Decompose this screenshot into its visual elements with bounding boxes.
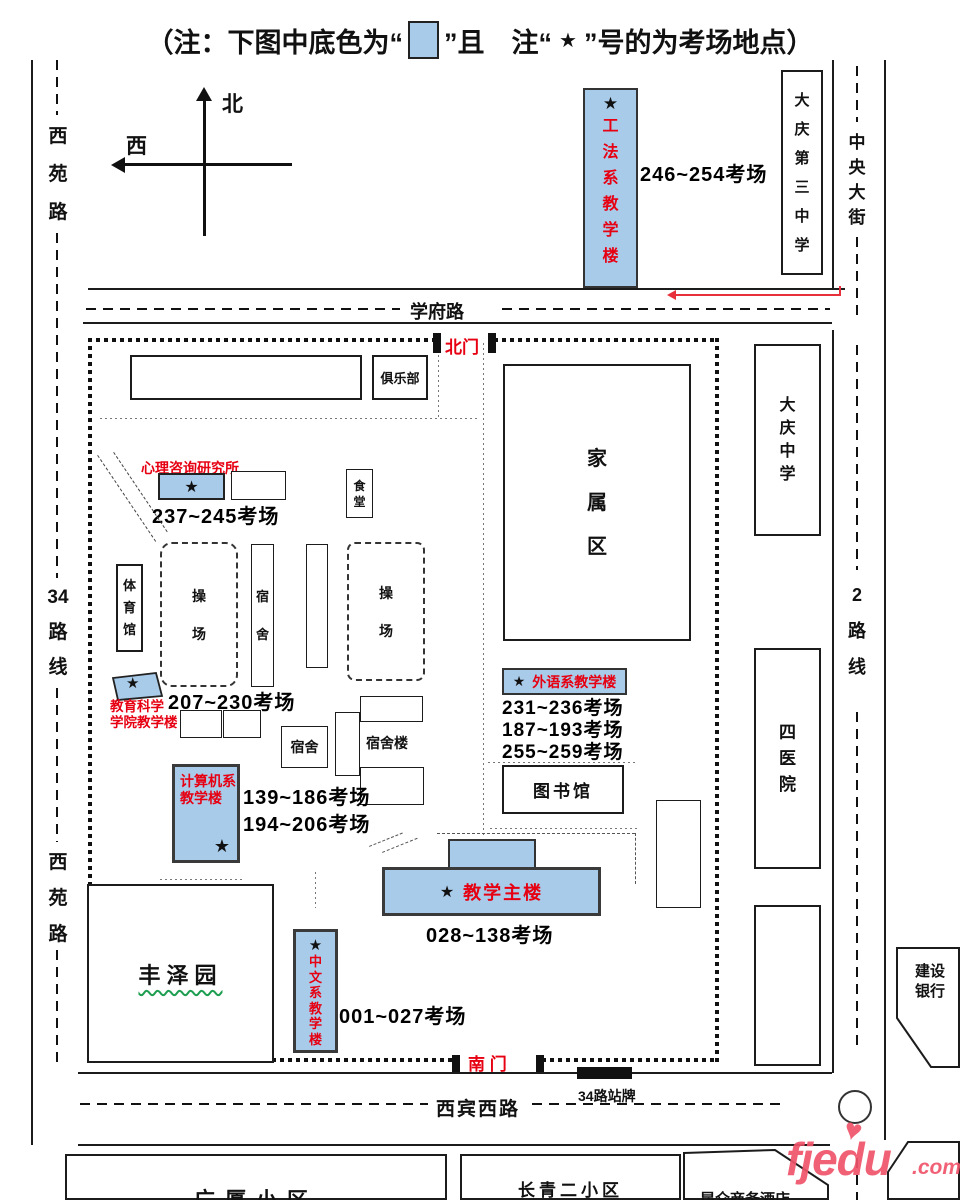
building-club: 俱乐部 <box>372 355 428 400</box>
inner-dotted-line <box>483 343 484 835</box>
building-unnamed-small <box>223 710 261 738</box>
dorm-vertical-label: 宿 舍 <box>256 578 269 654</box>
star-icon: ★ <box>440 882 454 902</box>
star-icon: ★ <box>126 674 139 692</box>
building-gym-label: 体 育 馆 <box>123 575 136 641</box>
campus-boundary-right <box>715 338 719 1062</box>
dorm-complex-label: 宿舍楼 <box>366 733 408 753</box>
building-no4-hospital-label: 四 医 院 <box>779 720 796 798</box>
building-daqing-middle-school: 大 庆 中 学 <box>754 344 821 536</box>
map-note: （注：下图中底色为“ ”且 注“ ★ ”号的为考场地点） <box>0 16 960 64</box>
playground-east: 操 场 <box>347 542 425 681</box>
building-unnamed-south <box>754 905 821 1066</box>
dashed-outline <box>437 833 635 834</box>
building-zhulou: ★ 教学主楼 <box>382 867 601 916</box>
building-waiyu-label: 外语系教学楼 <box>532 672 616 692</box>
building-waiyu: ★ 外语系教学楼 <box>502 668 627 695</box>
road-label-2-line: 2 路 线 <box>838 577 876 685</box>
building-fengzeyuan: 丰泽园 <box>87 884 274 1063</box>
compass-north-label: 北 <box>222 88 243 118</box>
area-family-label: 家 属 区 <box>587 437 607 569</box>
rooms-001-027: 001~027考场 <box>339 1000 466 1029</box>
north-gate-post <box>488 333 496 353</box>
watermark: ♥ fjedu .com <box>782 1122 960 1198</box>
dorm-complex-box <box>335 712 360 776</box>
rooms-028-138: 028~138考场 <box>426 919 553 948</box>
red-route-arrow-icon <box>667 290 676 300</box>
compass-north-arrow-icon <box>196 87 212 101</box>
watermark-brand: fjedu <box>786 1132 891 1186</box>
left-road-centerline <box>56 233 58 578</box>
inner-dotted-line <box>490 828 637 829</box>
campus-boundary-top <box>494 338 718 342</box>
building-jisuanji-label: 计算机系 教学楼 <box>175 767 237 807</box>
xibin-road-centerline <box>80 1103 428 1105</box>
rooms-237-245: 237~245考场 <box>152 500 279 529</box>
building-kunlun-label: 昆仑商务酒店 <box>700 1188 790 1200</box>
star-icon: ★ <box>214 836 230 857</box>
building-daqing-no3-middle-school: 大 庆 第 三 中 学 <box>781 70 823 275</box>
south-block-edge <box>78 1144 830 1146</box>
star-icon: ★ <box>184 477 198 497</box>
road-label-xiyuan-top: 西 苑 路 <box>38 118 78 232</box>
inner-dotted-line <box>315 872 316 908</box>
building-library-label: 图书馆 <box>533 777 593 802</box>
area-family-residential: 家 属 区 <box>503 364 691 641</box>
rooms-246-254: 246~254考场 <box>640 158 767 187</box>
road-label-xuefu: 学府路 <box>410 298 464 324</box>
red-route-tick <box>839 286 841 296</box>
xibin-road-centerline <box>532 1103 782 1105</box>
right-road-edge-inner <box>832 60 834 289</box>
north-gate-label: 北门 <box>445 333 479 358</box>
xibin-road-north-edge <box>78 1072 832 1074</box>
building-guangsha-label: 广厦小区 <box>67 1184 445 1200</box>
building-gongfa-teaching: ★ 工 法 系 教 学 楼 <box>583 88 638 288</box>
star-icon: ★ <box>603 94 618 114</box>
building-guangsha: 广厦小区 <box>65 1154 447 1200</box>
star-icon: ★ <box>309 936 322 954</box>
note-mid: ”且 注“ <box>444 21 552 60</box>
building-unnamed-long <box>130 355 362 400</box>
note-prefix: （注：下图中底色为“ <box>147 21 404 60</box>
playground-west-label: 操 场 <box>192 577 206 653</box>
building-unnamed-tall <box>656 800 701 908</box>
compass-horizontal-line <box>122 163 292 166</box>
building-zhulou-wing <box>448 839 536 869</box>
compass-vertical-line <box>203 98 206 236</box>
north-gate-post <box>433 333 441 353</box>
watermark-tld: .com <box>912 1156 960 1180</box>
right-road-edge-outer <box>884 60 886 1140</box>
left-road-centerline <box>56 688 58 842</box>
dashed-outline <box>635 833 636 884</box>
bus-stop-34-label: 34路站牌 <box>578 1086 636 1106</box>
compass-west-label: 西 <box>126 130 147 160</box>
inner-dotted-line <box>488 762 636 763</box>
building-xinli: ★ <box>158 473 225 500</box>
building-changqing-label: 长青二小区 <box>462 1176 679 1200</box>
blue-legend-swatch <box>408 21 439 59</box>
xuefu-road-centerline <box>86 308 400 310</box>
bus-stop-34-bar <box>577 1067 632 1079</box>
building-bank-label: 建设 银行 <box>908 962 952 1002</box>
right-road-edge-inner <box>832 330 834 1073</box>
rooms-jisuanji: 139~186考场 194~206考场 <box>243 785 370 839</box>
star-legend-icon: ★ <box>559 28 577 53</box>
left-road-edge <box>31 60 33 1145</box>
building-zhongwen-label: 中 文 系 教 学 楼 <box>309 954 322 1047</box>
building-daqing-middle-label: 大 庆 中 学 <box>779 394 795 486</box>
red-route-line <box>676 294 841 296</box>
building-canteen: 食 堂 <box>346 469 373 518</box>
left-road-centerline <box>56 950 58 1062</box>
building-gongfa-label: 工 法 系 教 学 楼 <box>602 114 618 270</box>
building-fengzeyuan-label: 丰泽园 <box>138 958 222 990</box>
building-unnamed-small <box>231 471 286 500</box>
building-zhulou-label: 教学主楼 <box>463 879 543 905</box>
building-unnamed-small <box>180 710 222 738</box>
right-road-centerline <box>856 345 858 570</box>
campus-boundary-bottom <box>542 1058 718 1062</box>
road-label-34-line: 34 路 线 <box>38 580 78 685</box>
note-suffix: ”号的为考场地点） <box>584 21 814 60</box>
inner-dotted-line <box>100 418 477 419</box>
building-library: 图书馆 <box>502 765 624 814</box>
playground-west: 操 场 <box>160 542 238 687</box>
building-gym: 体 育 馆 <box>116 564 143 652</box>
dorm-south: 宿舍 <box>281 726 328 768</box>
dotted-diagonal <box>382 838 418 853</box>
road-label-xiyuan-bottom: 西 苑 路 <box>38 845 78 953</box>
compass-west-arrow-icon <box>111 157 125 173</box>
right-road-centerline <box>856 712 858 1045</box>
inner-dotted-line <box>160 879 245 880</box>
xuefu-road-north-edge <box>88 288 845 290</box>
building-jisuanji: 计算机系 教学楼 ★ <box>172 764 240 863</box>
playground-east-label: 操 场 <box>379 574 393 650</box>
building-no4-hospital: 四 医 院 <box>754 648 821 869</box>
left-road-centerline <box>56 60 58 115</box>
dorm-south-label: 宿舍 <box>291 737 319 757</box>
inner-dotted-line <box>438 355 439 418</box>
building-unnamed-tall <box>306 544 328 668</box>
campus-exam-map: （注：下图中底色为“ ”且 注“ ★ ”号的为考场地点） 西 苑 路 34 路 … <box>0 0 960 1200</box>
building-club-label: 俱乐部 <box>380 368 419 387</box>
road-label-xibin: 西宾西路 <box>436 1094 520 1121</box>
rooms-waiyu: 231~236考场 187~193考场 255~259考场 <box>502 698 624 764</box>
xuefu-road-centerline <box>502 308 830 310</box>
dorm-vertical: 宿 舍 <box>251 544 274 687</box>
building-canteen-label: 食 堂 <box>353 478 365 510</box>
right-road-centerline <box>856 66 858 122</box>
road-label-zhongyang-dajie: 中 央 大 街 <box>838 130 876 230</box>
building-zhongwen: ★ 中 文 系 教 学 楼 <box>293 929 338 1053</box>
star-icon: ★ <box>513 673 526 690</box>
dorm-complex-box <box>360 696 423 722</box>
building-daqing-no3-label: 大 庆 第 三 中 学 <box>794 86 809 260</box>
campus-boundary-top <box>88 338 436 342</box>
right-road-centerline <box>856 237 858 317</box>
building-changqing: 长青二小区 <box>460 1154 681 1200</box>
